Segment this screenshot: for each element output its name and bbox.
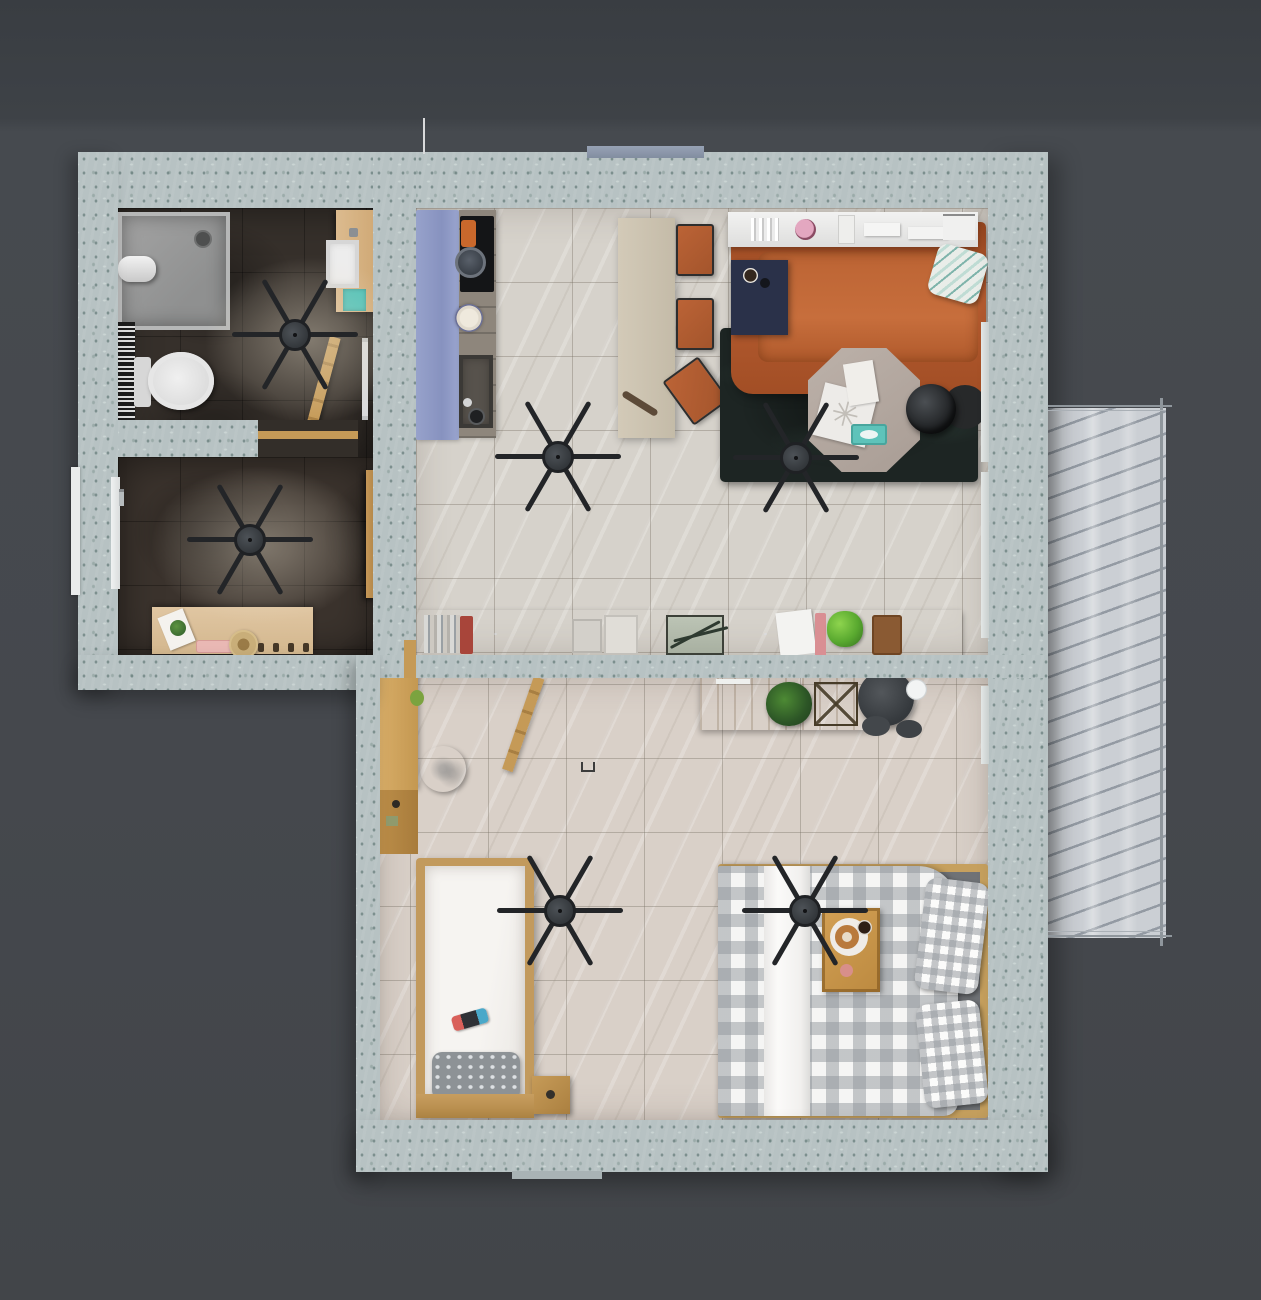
- checkered-pillow: [913, 877, 990, 996]
- door-handle-icon: [119, 489, 124, 506]
- ceiling-fan: [175, 465, 325, 615]
- single-bed-footboard: [416, 1094, 534, 1118]
- wall-left-lower: [356, 655, 380, 1172]
- wall-mid-horizontal: [356, 655, 1048, 678]
- railing-right: [1160, 398, 1163, 946]
- marble-round-table: [420, 746, 466, 792]
- coffee-mug: [906, 679, 927, 700]
- window-reveal: [981, 686, 989, 764]
- window-ledge: [587, 146, 704, 158]
- railing-bottom: [1048, 935, 1172, 937]
- ceiling-fan: [483, 382, 633, 532]
- pink-book: [815, 613, 826, 657]
- brown-book: [872, 615, 902, 655]
- doorway-threshold: [258, 431, 358, 439]
- wall-bottom: [356, 1120, 1048, 1172]
- book-row: [424, 615, 460, 653]
- paper-stack: [775, 609, 816, 659]
- ceiling-fan: [220, 260, 370, 410]
- wardrobe-item: [386, 816, 398, 826]
- desk-paper: [716, 679, 750, 684]
- small-plant: [410, 690, 424, 706]
- ladder-hook-icon: [581, 762, 595, 772]
- railing-top: [1048, 405, 1172, 407]
- desk-plant: [766, 682, 812, 726]
- wall-left-upper: [78, 152, 118, 690]
- wardrobe-upper: [380, 672, 418, 790]
- railing-inner-line: [1048, 410, 1166, 411]
- railing-inner-line: [1048, 931, 1166, 932]
- chair-armrest: [896, 720, 922, 738]
- red-book: [460, 616, 473, 654]
- wardrobe-item: [392, 800, 400, 808]
- wall-hall-bottom: [78, 655, 373, 690]
- antenna-line: [423, 118, 425, 154]
- clothes-ladder: [502, 676, 544, 772]
- window-sill: [512, 1171, 602, 1179]
- wall-top: [78, 152, 1048, 208]
- wall-bathroom-hall: [118, 420, 258, 457]
- nightstand-knob-icon: [546, 1090, 555, 1099]
- book-stack: [604, 615, 638, 655]
- ceiling-fan: [721, 383, 871, 533]
- entrance-door-frame: [71, 467, 80, 595]
- doorway-threshold: [404, 640, 416, 678]
- window-reveal: [981, 322, 989, 462]
- ceiling-fan: [485, 836, 635, 986]
- gray-pillow: [432, 1052, 520, 1100]
- ceiling-fan: [730, 836, 880, 986]
- book-stack: [572, 619, 602, 653]
- potted-plant: [827, 611, 863, 647]
- checkered-pillow: [915, 999, 990, 1109]
- floorplan-scene: ✳: [0, 0, 1261, 1300]
- chair-armrest: [862, 716, 890, 736]
- wall-bathroom-kitchen: [373, 152, 416, 655]
- wire-basket: [814, 682, 858, 726]
- window-reveal: [981, 472, 989, 638]
